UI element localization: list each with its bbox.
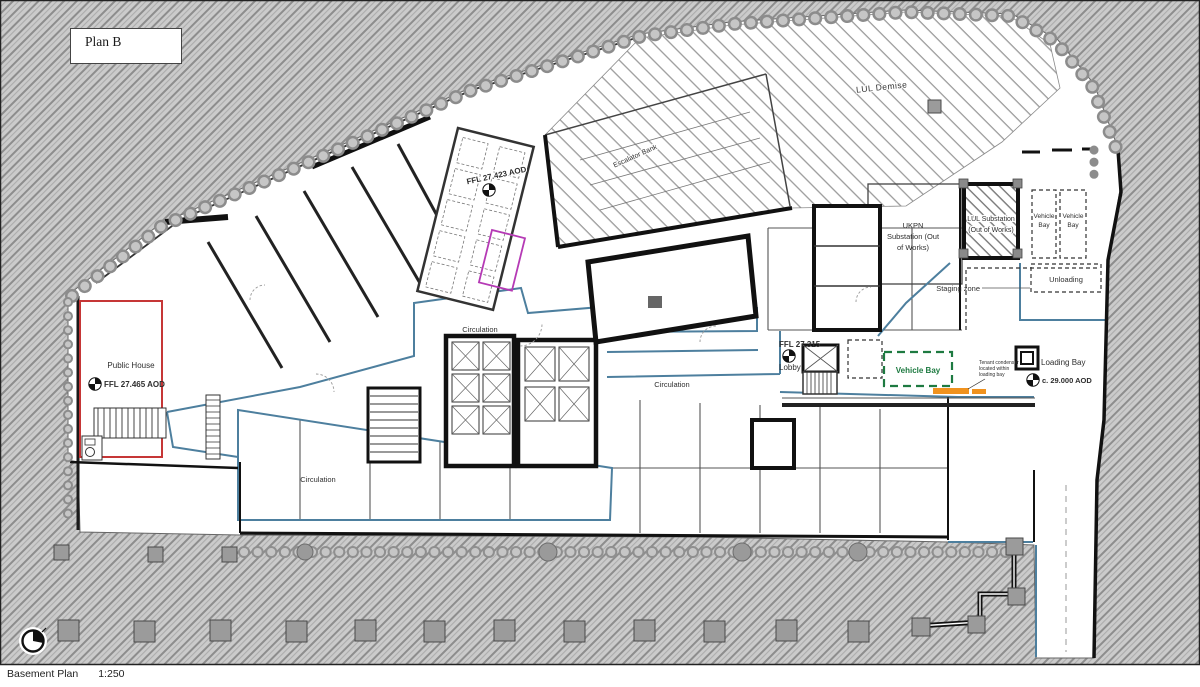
basement-plan-drawing: Public House FFL 27.465 AOD FFL 27.423 A… [0,0,1200,687]
loading-bay-level-label: c. 29.000 AOD [1042,376,1092,385]
public-house-label: Public House [107,361,155,370]
ukpn-label-line3: of Works) [897,243,929,252]
lift-core-east [518,340,596,466]
plan-title-label: Plan B [71,29,181,50]
service-riser-ladder [206,395,220,459]
lul-substation-label-line2: (Out of Works) [968,227,1013,234]
stair-core [368,388,420,462]
condenser-orange-highlight-2 [972,389,986,394]
vehicle-bay-1-label-line1: Vehicle [1034,213,1055,220]
floor-plan-svg: Public House FFL 27.465 AOD FFL 27.423 A… [0,0,1200,687]
lul-substation-label-line1: LUL Substation [967,216,1015,223]
drawing-caption: Basement Plan1:250 [7,668,125,680]
circulation-label-central: Circulation [654,380,689,389]
lobby-label: Lobby [779,363,801,372]
staging-zone-label: Staging zone [936,284,980,293]
condenser-orange-highlight-1 [933,388,969,394]
loading-bay-label: Loading Bay [1041,358,1085,367]
tenant-note-line3: loading bay [979,372,1005,378]
unloading-label: Unloading [1049,275,1083,284]
north-arrow-icon [19,627,47,655]
vehicle-bay-2-label-line2: Bay [1067,222,1079,229]
circulation-label-north: Circulation [462,325,497,334]
level-marker-public-house [89,378,101,390]
level-marker-core [483,184,495,196]
public-house-level-label: FFL 27.465 AOD [104,380,165,389]
lobby-level-label: FFL 27.315 [779,340,821,349]
hoist-symbol [1016,347,1038,369]
ukpn-label-line1: UKPN [903,221,924,230]
level-marker-lobby [783,350,795,362]
east-core [814,206,880,330]
lift-core-west [446,336,514,466]
south-riser-core [752,420,794,468]
vehicle-bay-green-label: Vehicle Bay [896,366,941,375]
ukpn-label-line2: Substation (Out [887,232,940,241]
vehicle-bay-2-label-line1: Vehicle [1063,213,1084,220]
caption-scale: 1:250 [98,668,124,680]
lobby-core [803,345,838,394]
plan-title-box: Plan B [70,28,182,64]
circulation-label-south: Circulation [300,475,335,484]
public-house-stair [94,408,166,438]
vehicle-bay-1-label-line2: Bay [1038,222,1050,229]
caption-title: Basement Plan [7,668,78,680]
level-marker-loading-bay [1027,374,1039,386]
